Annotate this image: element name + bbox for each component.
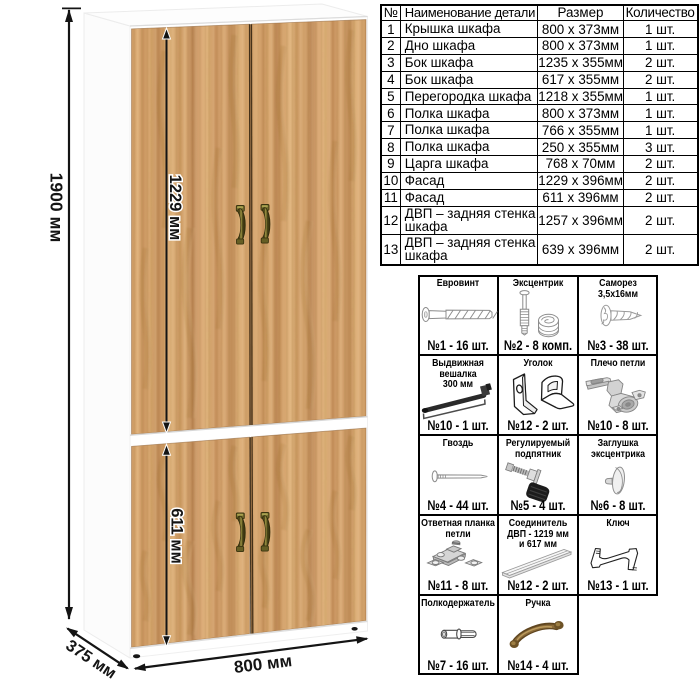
svg-text:1900 мм: 1900 мм [47,173,67,243]
svg-text:1229 мм: 1229 мм [166,175,184,241]
svg-text:611 мм: 611 мм [168,508,186,564]
